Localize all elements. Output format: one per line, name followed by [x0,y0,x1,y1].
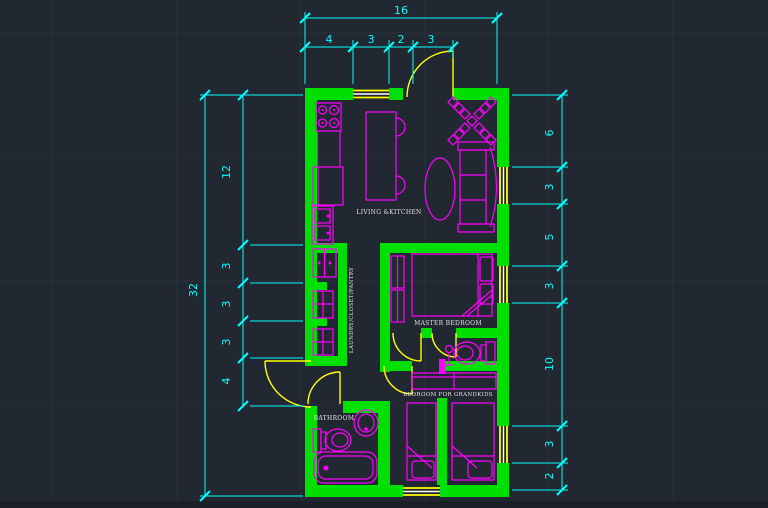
dim-right-seg: 3 [543,184,556,191]
floor-plan-drawing: LIVING &KITCHEN LAUNDRY/CLOSET/PANTRY MA… [0,0,768,508]
dim-left-seg: 12 [220,165,233,179]
dim-right-seg: 10 [543,357,556,371]
dim-left-seg: 3 [220,339,233,346]
dim-right-seg: 3 [543,283,556,290]
dim-top-overall: 16 [394,4,408,17]
dim-left-seg: 4 [220,378,233,385]
dim-left-seg: 3 [220,301,233,308]
dim-top-seg: 3 [428,33,435,46]
cad-drawing-canvas[interactable]: LIVING &KITCHEN LAUNDRY/CLOSET/PANTRY MA… [0,0,768,508]
dim-left-seg: 3 [220,263,233,270]
dim-top-seg: 4 [326,33,333,46]
dim-top-seg: 3 [368,33,375,46]
laundry-label[interactable]: LAUNDRY/CLOSET/PANTRY [349,267,355,353]
dim-top-seg: 2 [398,33,405,46]
master-bedroom-label[interactable]: MASTER BEDROOM [414,320,482,327]
door-frame-mark [439,359,445,374]
dim-right-seg: 3 [543,441,556,448]
dim-right-seg: 6 [543,130,556,137]
grandkids-bedroom-label[interactable]: BEDROOM FOR GRANDKIDS [403,392,493,398]
living-kitchen-label[interactable]: LIVING &KITCHEN [356,209,421,216]
dim-right-seg: 2 [543,473,556,480]
dim-right-seg: 5 [543,234,556,241]
canvas-bottom-strip [0,501,768,508]
dim-left-overall: 32 [187,283,200,297]
bathroom-label[interactable]: BATHROOM [314,415,355,422]
